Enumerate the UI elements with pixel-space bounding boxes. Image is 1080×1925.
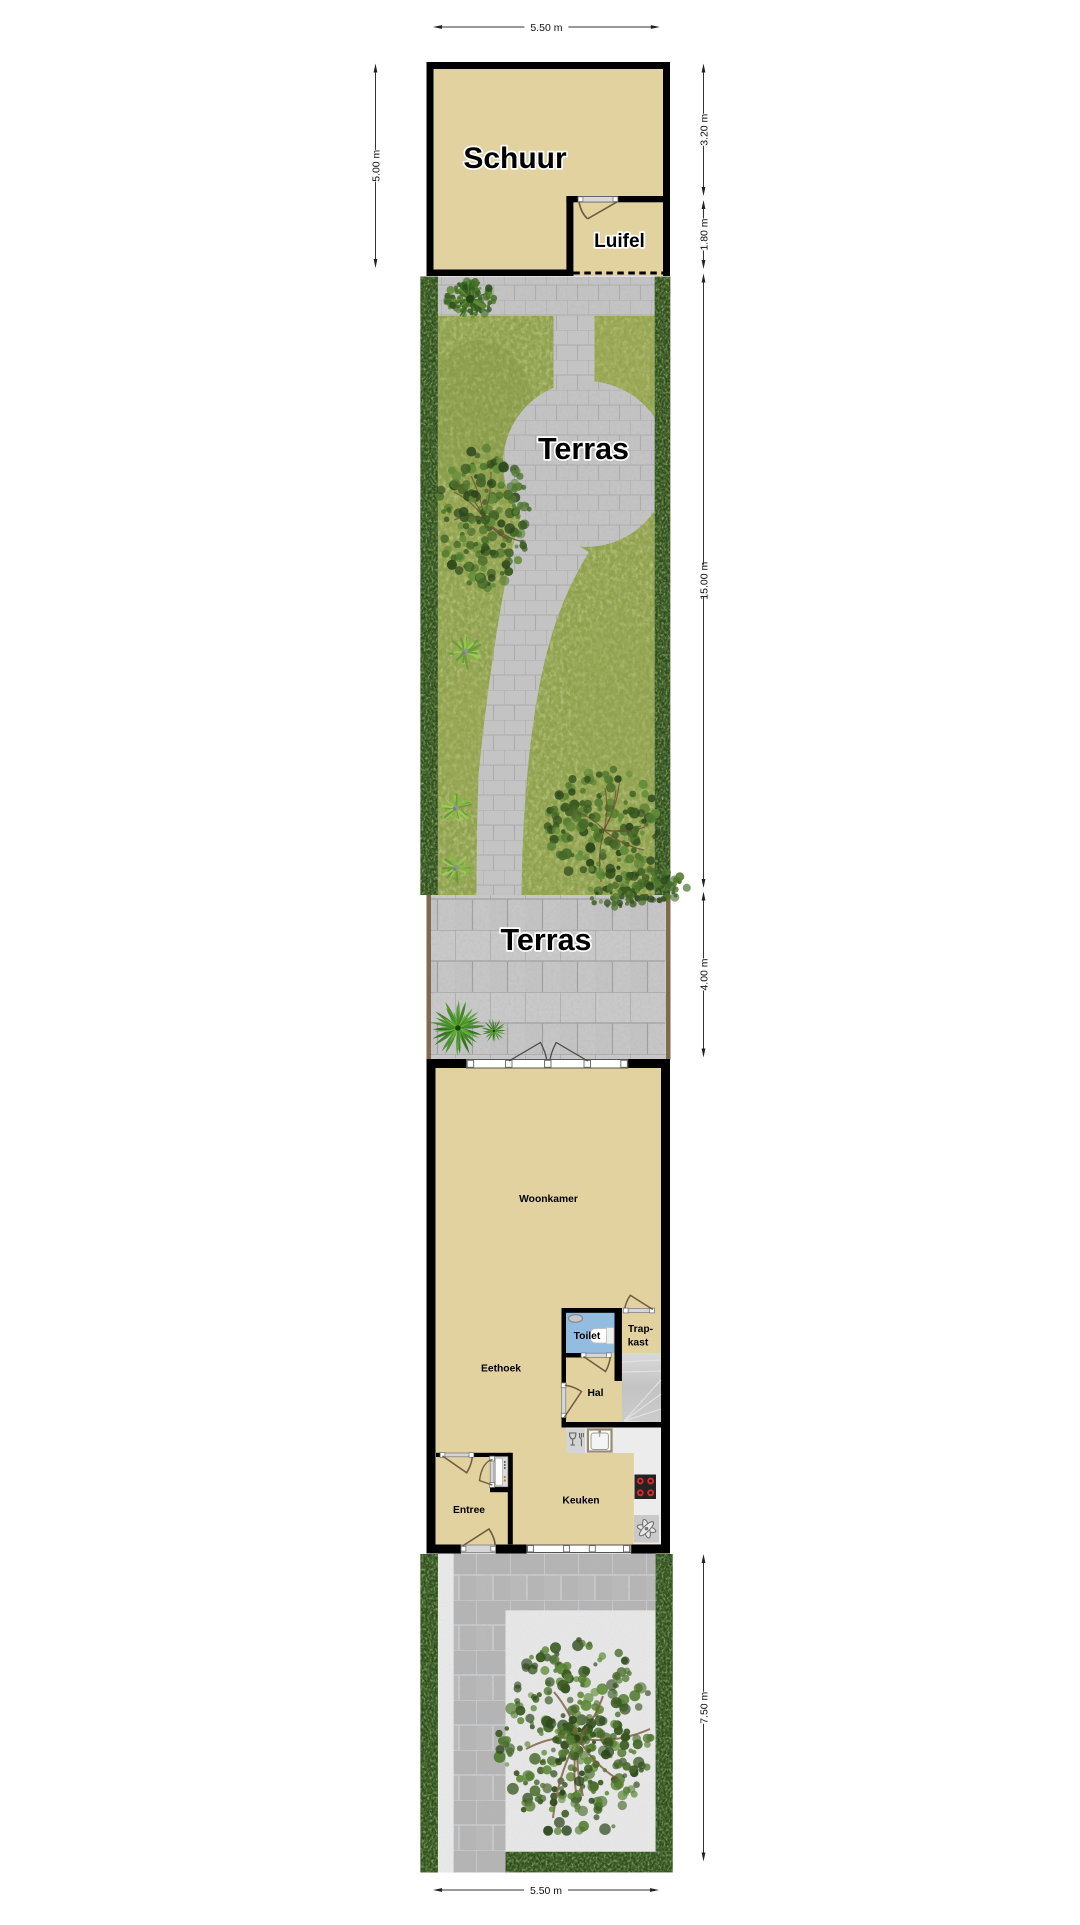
svg-text:Luifel: Luifel (594, 231, 645, 252)
svg-text:1.80 m: 1.80 m (699, 218, 711, 250)
svg-text:5.00 m: 5.00 m (371, 149, 383, 181)
svg-text:Keuken: Keuken (562, 1496, 599, 1507)
svg-text:5.50 m: 5.50 m (530, 1885, 562, 1897)
svg-text:Trap-: Trap- (628, 1324, 654, 1335)
svg-text:Eethoek: Eethoek (481, 1364, 521, 1375)
svg-text:4.00 m: 4.00 m (699, 958, 711, 990)
svg-text:Entree: Entree (453, 1505, 485, 1516)
svg-text:Terras: Terras (538, 432, 629, 466)
svg-text:kast: kast (628, 1338, 649, 1349)
svg-text:Toilet: Toilet (574, 1331, 601, 1342)
svg-text:3.20 m: 3.20 m (699, 113, 711, 145)
svg-text:Woonkamer: Woonkamer (519, 1194, 578, 1205)
svg-text:5.50 m: 5.50 m (530, 22, 562, 34)
svg-text:Hal: Hal (587, 1388, 603, 1399)
svg-text:Terras: Terras (501, 923, 592, 957)
svg-text:Schuur: Schuur (463, 142, 567, 175)
svg-text:15.00 m: 15.00 m (699, 562, 711, 600)
svg-text:7.50 m: 7.50 m (699, 1691, 711, 1723)
